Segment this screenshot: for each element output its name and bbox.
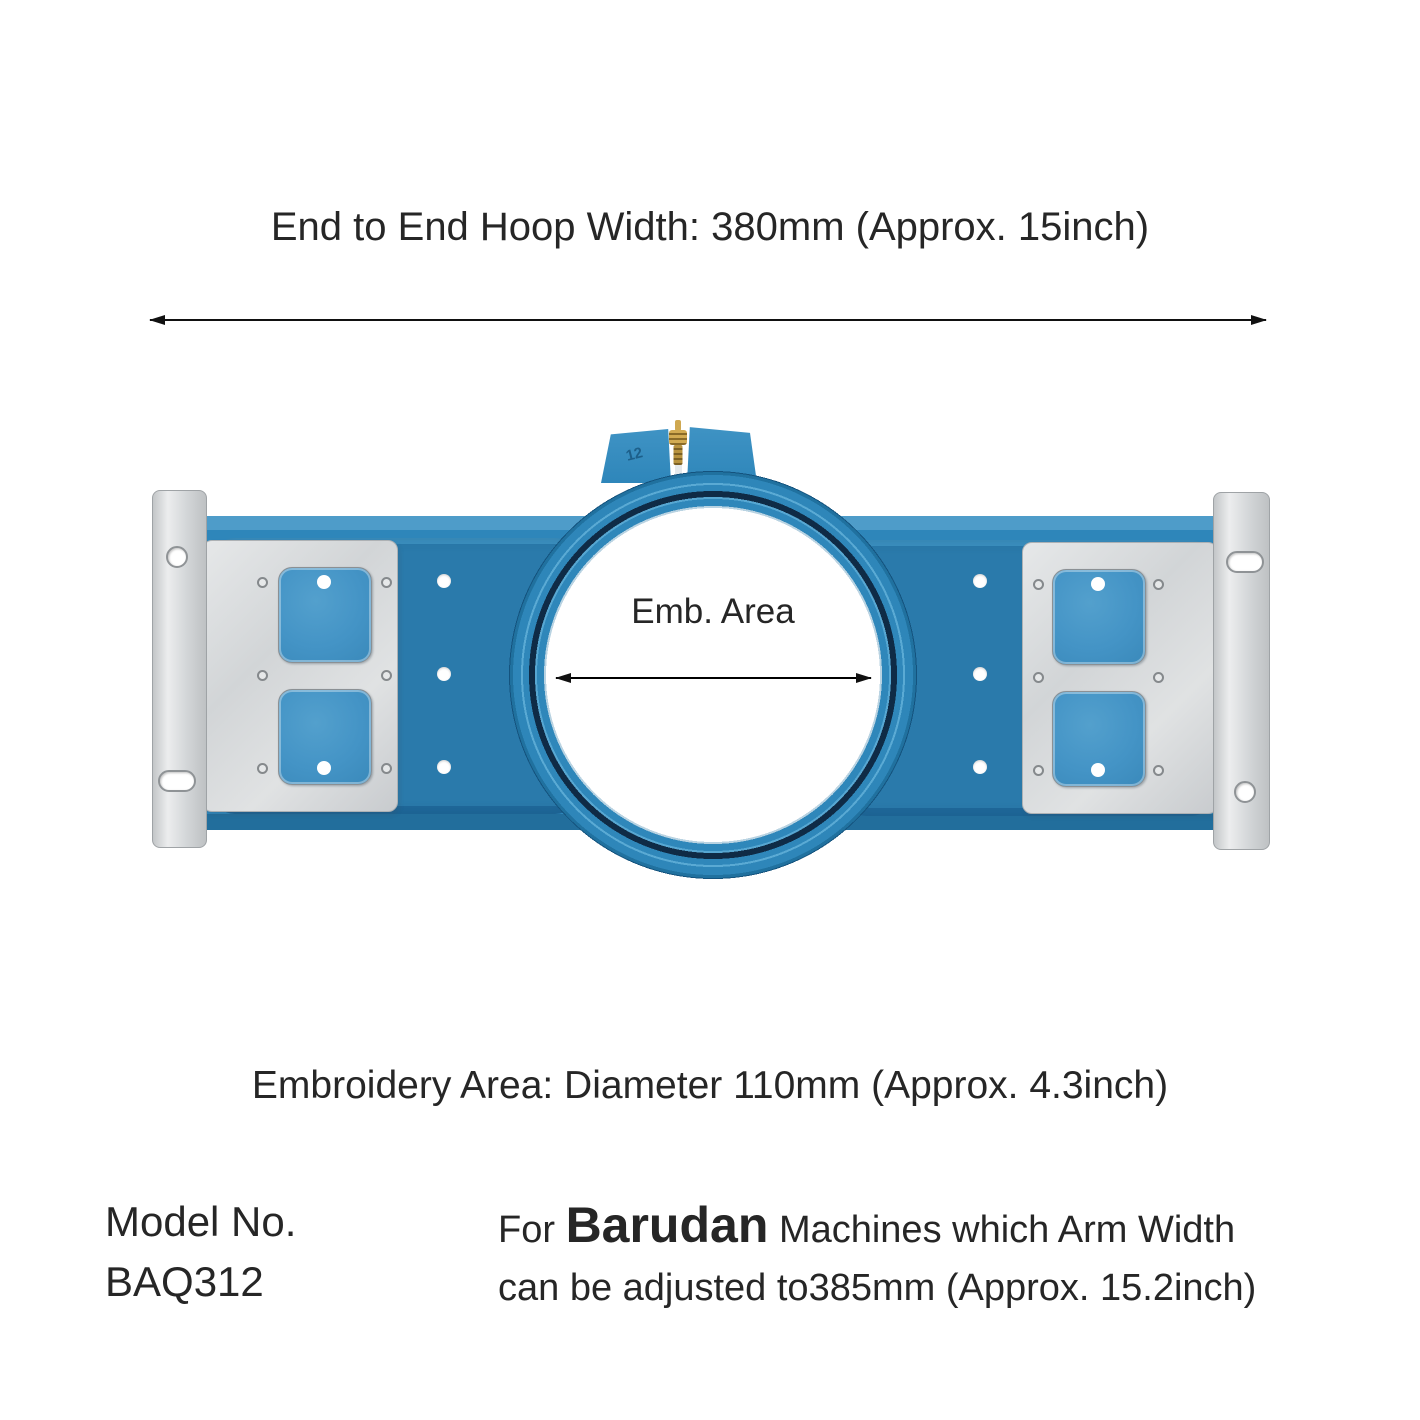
compatibility-line2: can be adjusted to385mm (Approx. 15.2inc…: [498, 1259, 1378, 1317]
rivet-hole: [1153, 579, 1164, 590]
clamp-window-hole: [1091, 763, 1105, 777]
screw-knurl: [669, 430, 687, 445]
right-bracket-slot: [1226, 551, 1264, 573]
model-no-label: Model No.: [105, 1192, 296, 1252]
left-bracket-hole: [166, 546, 188, 568]
rivet-hole: [381, 670, 392, 681]
arm-hole: [437, 667, 451, 681]
arm-hole: [973, 574, 987, 588]
arm-hole: [973, 760, 987, 774]
left-bracket-slot: [158, 770, 196, 792]
rivet-hole: [1033, 672, 1044, 683]
rivet-hole: [381, 577, 392, 588]
brand-name: Barudan: [566, 1197, 769, 1253]
right-bracket-hole: [1234, 781, 1256, 803]
rivet-hole: [1033, 765, 1044, 776]
rivet-hole: [257, 670, 268, 681]
left-mount-bracket: [152, 490, 207, 848]
left-clamp-plate: [202, 540, 398, 812]
rivet-hole: [381, 763, 392, 774]
embroidery-area-caption: Embroidery Area: Diameter 110mm (Approx.…: [0, 1064, 1420, 1108]
model-block: Model No. BAQ312: [105, 1192, 296, 1312]
compatibility-line1: For Barudan Machines which Arm Width: [498, 1196, 1378, 1259]
rivet-hole: [1153, 765, 1164, 776]
compatibility-note: For Barudan Machines which Arm Width can…: [498, 1196, 1378, 1317]
arm-hole: [437, 574, 451, 588]
rivet-hole: [257, 577, 268, 588]
clamp-window-hole: [317, 575, 331, 589]
screw-shaft: [674, 445, 683, 465]
emb-area-arrow: [556, 677, 871, 679]
arm-hole: [437, 760, 451, 774]
rivet-hole: [1033, 579, 1044, 590]
rivet-hole: [1153, 672, 1164, 683]
product-image-canvas: End to End Hoop Width: 380mm (Approx. 15…: [0, 0, 1420, 1420]
arm-hole: [973, 667, 987, 681]
clamp-window-hole: [1091, 577, 1105, 591]
compatibility-suffix: Machines which Arm Width: [779, 1209, 1235, 1251]
tension-screw: [668, 420, 688, 466]
emb-area-label: Emb. Area: [563, 592, 863, 632]
right-clamp-plate: [1022, 542, 1218, 814]
clamp-window-hole: [317, 761, 331, 775]
model-number: BAQ312: [105, 1252, 296, 1312]
compatibility-prefix: For: [498, 1209, 555, 1251]
right-mount-bracket: [1213, 492, 1270, 850]
rivet-hole: [257, 763, 268, 774]
